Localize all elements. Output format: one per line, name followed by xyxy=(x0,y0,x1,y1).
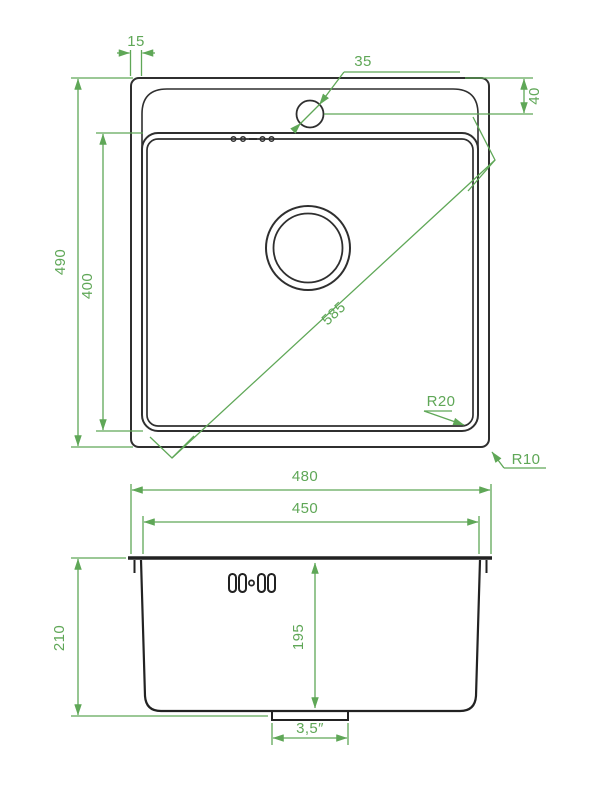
dim-drain-size: 3,5″ xyxy=(272,720,348,745)
dim-bowl-inner-depth: 195 xyxy=(290,563,315,708)
top-view: 15 490 400 35 40 xyxy=(52,33,546,468)
dim-bowl-corner-radius: R20 xyxy=(424,393,464,425)
sink-drawing: 15 490 400 35 40 xyxy=(0,0,616,800)
dim-faucet-hole: 35 xyxy=(293,53,460,131)
drain-inner-circle xyxy=(274,214,343,283)
dim-label-35: 35 xyxy=(354,53,372,70)
dim-label-480: 480 xyxy=(292,468,318,485)
dim-label-r20: R20 xyxy=(427,393,456,410)
dim-rim-width: 15 xyxy=(117,33,155,76)
drain-recess xyxy=(272,711,348,720)
dim-label-400: 400 xyxy=(79,273,96,299)
dim-label-195: 195 xyxy=(290,624,307,650)
dim-label-490: 490 xyxy=(52,249,69,275)
dim-label-450: 450 xyxy=(292,500,318,517)
dim-faucet-offset: 40 xyxy=(324,78,543,114)
dim-label-40: 40 xyxy=(526,87,543,105)
dim-label-15: 15 xyxy=(127,33,145,50)
dim-label-585: 585 xyxy=(319,299,350,329)
dim-outer-corner-radius: R10 xyxy=(492,451,546,468)
drain-outer-circle xyxy=(266,206,350,290)
dim-label-r10: R10 xyxy=(512,451,541,468)
dim-bowl-depth: 400 xyxy=(79,133,143,431)
side-view: 480 450 210 195 3,5″ xyxy=(51,468,492,745)
dim-label-210: 210 xyxy=(51,625,68,651)
overflow-holes-front-icon xyxy=(229,574,275,592)
dim-label-drain: 3,5″ xyxy=(296,720,324,737)
dim-bowl-top-width: 450 xyxy=(143,500,479,554)
bowl-section-outline xyxy=(141,560,480,711)
technical-drawing-page: 15 490 400 35 40 xyxy=(0,0,616,800)
